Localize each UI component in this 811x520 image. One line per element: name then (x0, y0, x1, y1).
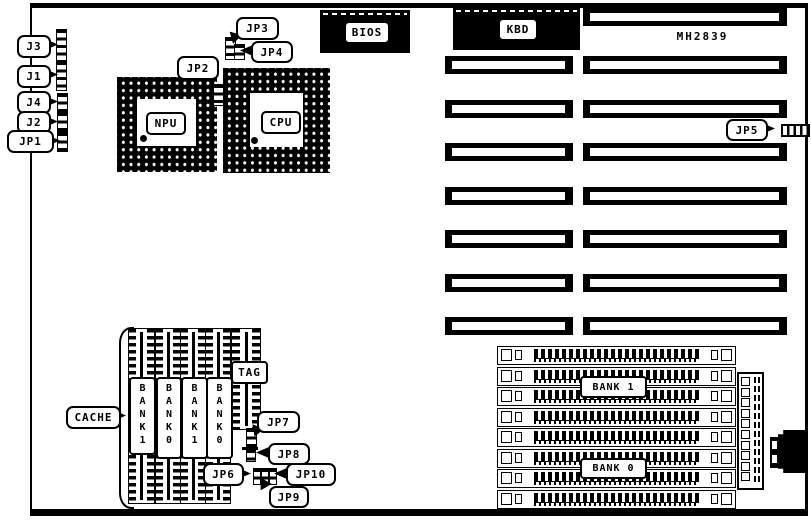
isa-slot (445, 230, 573, 248)
simm-clip-left (501, 452, 512, 464)
simm-latch-right (711, 412, 718, 422)
cache-bank-label: BANK0 (215, 382, 224, 447)
isa-slot (583, 274, 787, 292)
isa-slot (445, 274, 573, 292)
isa-slot (445, 317, 573, 335)
callout-cache: CACHE (66, 406, 121, 429)
jp1-label: JP1 (19, 135, 42, 148)
simm-clip-right (721, 349, 732, 361)
cache-bank0a-label-box: BANK0 (156, 377, 182, 459)
jp6-cluster-pin3 (269, 468, 277, 485)
simm-latch-right (711, 494, 718, 504)
npu-pin1-marker (140, 135, 147, 142)
cache-bank0b-label-box: BANK0 (206, 377, 233, 459)
power-pin (741, 398, 750, 407)
jp2-header (213, 84, 224, 106)
callout-jp4: JP4 (251, 41, 293, 63)
simm-clip-left (501, 493, 512, 505)
cache-label: CACHE (74, 411, 112, 424)
jp3-label: JP3 (246, 22, 269, 35)
cache-bank-label: BANK1 (190, 382, 199, 447)
power-pin (741, 377, 750, 386)
isa-slot (445, 143, 573, 161)
isa-slot (445, 56, 573, 74)
simm-latch-right (711, 453, 718, 463)
power-pin (741, 462, 750, 471)
simm-contacts (534, 411, 699, 421)
simm-contacts-row2 (534, 359, 699, 362)
j3-header (56, 29, 67, 61)
npu-label-box: NPU (146, 112, 186, 135)
simm-socket (497, 346, 736, 365)
j2-header (57, 112, 68, 132)
cpu-label-box: CPU (261, 111, 301, 134)
simm-clip-right (721, 370, 732, 382)
isa-slot (445, 187, 573, 205)
j2-label: J2 (26, 116, 41, 129)
j1-header (56, 61, 67, 91)
simm-clip-right (721, 472, 732, 484)
din-connector-notch (772, 441, 777, 449)
jp1-header (57, 132, 68, 152)
motherboard-diagram: J3 J1 J4 J2 JP1 NPU CPU JP2 JP3 JP4 BIOS… (0, 0, 811, 520)
din-connector-body (778, 430, 807, 473)
cache-bank-label: BANK0 (165, 382, 174, 447)
jp9-label: JP9 (278, 491, 301, 504)
callout-jp7: JP7 (257, 411, 300, 433)
callout-jp8: JP8 (268, 443, 310, 465)
simm-contacts-row2 (534, 503, 699, 506)
callout-jp9: JP9 (269, 486, 309, 508)
simm-latch-left (515, 391, 522, 401)
simm-clip-right (721, 452, 732, 464)
power-pin (741, 441, 750, 450)
bios-label: BIOS (352, 26, 383, 39)
callout-jp6: JP6 (203, 463, 244, 486)
simm-clip-left (501, 349, 512, 361)
cpu-label: CPU (270, 116, 293, 129)
simm-socket (497, 490, 736, 509)
simm-latch-left (515, 350, 522, 360)
simm-clip-left (501, 411, 512, 423)
j3-label: J3 (26, 40, 41, 53)
board-edge-bottom (30, 509, 808, 516)
simm-bank0-label-box: BANK 0 (580, 458, 647, 479)
npu-label: NPU (155, 117, 178, 130)
simm-latch-right (711, 432, 718, 442)
simm-latch-left (515, 473, 522, 483)
simm-bank0-label: BANK 0 (592, 463, 634, 474)
simm-socket (497, 408, 736, 427)
simm-clip-left (501, 390, 512, 402)
power-pin (741, 388, 750, 397)
simm-latch-right (711, 371, 718, 381)
j4-label: J4 (26, 96, 41, 109)
simm-latch-left (515, 371, 522, 381)
simm-contacts (534, 431, 699, 441)
callout-jp1: JP1 (7, 130, 54, 153)
simm-contacts (534, 349, 699, 359)
isa-slot (583, 143, 787, 161)
callout-jp5: JP5 (726, 119, 768, 141)
jp5-header (781, 124, 810, 137)
bios-label-box: BIOS (344, 21, 390, 44)
tag-label-box: TAG (231, 361, 268, 384)
jp6-label: JP6 (212, 468, 235, 481)
simm-clip-left (501, 472, 512, 484)
callout-j1: J1 (17, 65, 51, 88)
simm-bank1-label-box: BANK 1 (580, 376, 647, 398)
power-connector-pins (754, 377, 756, 485)
kbd-label: KBD (507, 23, 530, 36)
simm-clip-right (721, 390, 732, 402)
simm-contacts-row2 (534, 400, 699, 403)
simm-contacts (534, 493, 699, 503)
jp4-label: JP4 (261, 46, 284, 59)
kbd-notch (456, 10, 577, 12)
power-pin (741, 409, 750, 418)
cache-bank1a-label-box: BANK1 (129, 377, 156, 455)
cache-bank1b-label-box: BANK1 (181, 377, 208, 459)
jp6-cluster-pin1 (253, 468, 261, 485)
simm-latch-left (515, 412, 522, 422)
power-pin (741, 451, 750, 460)
callout-jp2: JP2 (177, 56, 219, 80)
simm-latch-left (515, 432, 522, 442)
j1-label: J1 (26, 70, 41, 83)
cache-bank-label: BANK1 (138, 382, 147, 447)
callout-jp3: JP3 (236, 17, 279, 40)
jp4-header (234, 44, 245, 60)
simm-contacts-row2 (534, 482, 699, 485)
isa-slot (583, 317, 787, 335)
jp8-header (246, 449, 256, 462)
isa-slot (583, 56, 787, 74)
simm-latch-right (711, 473, 718, 483)
power-pin (741, 419, 750, 428)
din-connector-notch (772, 455, 777, 463)
simm-clip-right (721, 411, 732, 423)
power-connector-pins (758, 377, 760, 485)
j4-header (57, 93, 68, 113)
callout-jp10: JP10 (286, 463, 336, 486)
simm-contacts-row2 (534, 421, 699, 424)
board-model: MH2839 (640, 30, 765, 43)
tag-label: TAG (238, 366, 261, 379)
cpu-pin1-marker (251, 137, 258, 144)
simm-bank1-label: BANK 1 (592, 382, 634, 393)
simm-clip-right (721, 431, 732, 443)
simm-latch-right (711, 391, 718, 401)
simm-clip-right (721, 493, 732, 505)
jp5-label: JP5 (736, 124, 759, 137)
simm-clip-left (501, 370, 512, 382)
kbd-label-box: KBD (498, 18, 538, 41)
simm-socket (497, 428, 736, 447)
simm-latch-left (515, 453, 522, 463)
bios-notch (323, 13, 407, 15)
isa-slot (445, 100, 573, 118)
power-pin (741, 430, 750, 439)
simm-latch-right (711, 350, 718, 360)
power-pin (741, 472, 750, 481)
callout-j3: J3 (17, 35, 51, 58)
isa-slot (583, 100, 787, 118)
simm-latch-left (515, 494, 522, 504)
jp2-label: JP2 (187, 62, 210, 75)
jp8-label: JP8 (278, 448, 301, 461)
simm-clip-left (501, 431, 512, 443)
jp10-label: JP10 (296, 468, 327, 481)
isa-slot (583, 8, 787, 26)
jp7-label: JP7 (267, 416, 290, 429)
power-connector (737, 372, 764, 490)
isa-slot (583, 187, 787, 205)
isa-slot (583, 230, 787, 248)
simm-contacts-row2 (534, 441, 699, 444)
